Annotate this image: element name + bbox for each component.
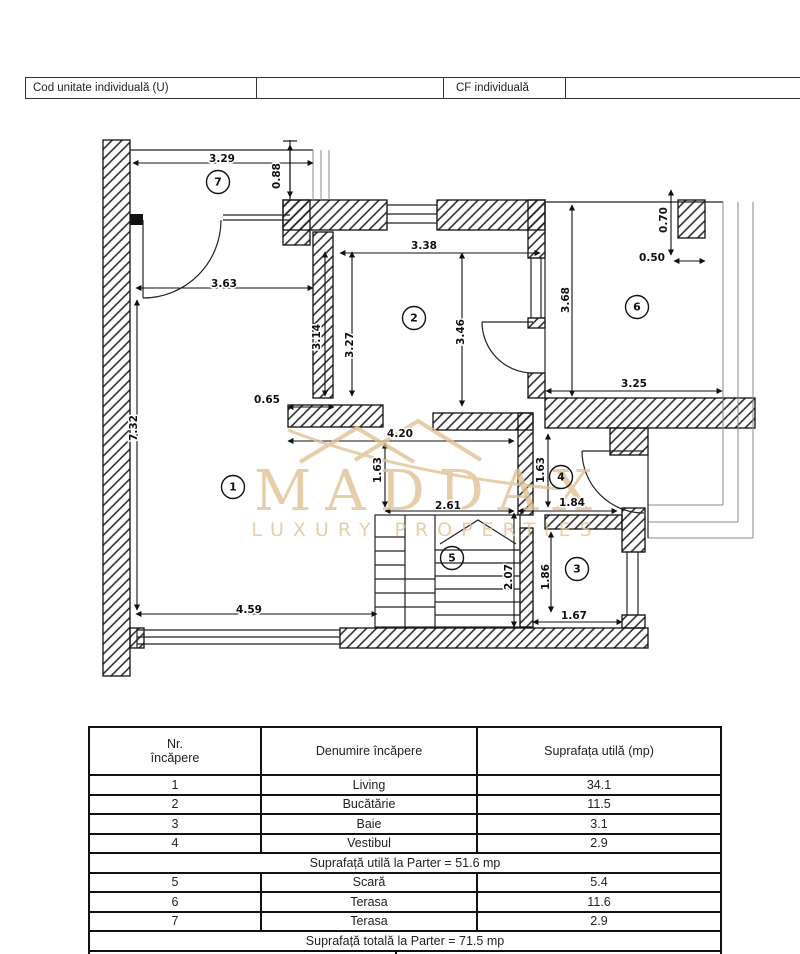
total-row: Suprafață totală la Parter = 71.5 mp bbox=[90, 930, 720, 950]
dim-label: 4.59 bbox=[236, 604, 262, 616]
dim-label: 4.20 bbox=[387, 428, 413, 440]
room-name-cell: Bucătărie bbox=[262, 796, 478, 814]
dim-label: 1.86 bbox=[540, 564, 552, 590]
room-area-cell: 11.5 bbox=[478, 796, 720, 814]
room-number-cell: 7 bbox=[90, 913, 262, 931]
room-name-cell: Scară bbox=[262, 874, 478, 892]
room-number-cell: 6 bbox=[90, 893, 262, 911]
room-number: 4 bbox=[557, 471, 565, 484]
room-area-cell: 11.6 bbox=[478, 893, 720, 911]
header-suprafata: Suprafața utilă (mp) bbox=[478, 728, 720, 774]
dim-label: 1.84 bbox=[559, 497, 585, 509]
table-row: 4Vestibul2.9 bbox=[90, 833, 720, 853]
door-jamb bbox=[130, 214, 143, 225]
dim-label: 3.27 bbox=[344, 332, 356, 358]
table-row: 2Bucătărie11.5 bbox=[90, 794, 720, 814]
table-row: 7Terasa2.9 bbox=[90, 911, 720, 931]
next-table-partial-row bbox=[90, 950, 720, 954]
dim-label: 1.67 bbox=[561, 610, 587, 622]
dim-label: 0.88 bbox=[271, 163, 283, 189]
room-name-cell: Terasa bbox=[262, 913, 478, 931]
room-number: 5 bbox=[448, 552, 456, 565]
room-number-cell: 3 bbox=[90, 815, 262, 833]
room-name-cell: Terasa bbox=[262, 893, 478, 911]
table-row: 1Living34.1 bbox=[90, 774, 720, 794]
floor-plan-drawing: MADDAX LUXURY PROPERTIES 3.290.883.637.3… bbox=[0, 0, 800, 720]
room-area-cell: 34.1 bbox=[478, 776, 720, 794]
room-number: 6 bbox=[633, 301, 641, 314]
room-area-cell: 2.9 bbox=[478, 835, 720, 853]
rows-parter: 1Living34.12Bucătărie11.53Baie3.14Vestib… bbox=[90, 774, 720, 852]
header-denumire: Denumire încăpere bbox=[262, 728, 478, 774]
room-number: 2 bbox=[410, 312, 418, 325]
watermark: MADDAX LUXURY PROPERTIES bbox=[251, 421, 606, 541]
room-number: 1 bbox=[229, 481, 237, 494]
header-nr-line2: încăpere bbox=[151, 751, 200, 765]
room-area-cell: 3.1 bbox=[478, 815, 720, 833]
room-area-cell: 5.4 bbox=[478, 874, 720, 892]
room-number: 7 bbox=[214, 176, 222, 189]
dim-label: 0.70 bbox=[658, 207, 670, 233]
watermark-tagline: LUXURY PROPERTIES bbox=[251, 519, 600, 541]
dim-label: 3.46 bbox=[455, 319, 467, 345]
subtotal-row: Suprafață utilă la Parter = 51.6 mp bbox=[90, 852, 720, 872]
room-number-cell: 2 bbox=[90, 796, 262, 814]
room-name-cell: Vestibul bbox=[262, 835, 478, 853]
dim-label: 3.68 bbox=[560, 287, 572, 313]
room-number-cell: 5 bbox=[90, 874, 262, 892]
dim-label: 1.63 bbox=[535, 457, 547, 483]
dim-label: 2.61 bbox=[435, 500, 461, 512]
header-nr-line1: Nr. bbox=[167, 737, 183, 751]
dim-label: 3.38 bbox=[411, 240, 437, 252]
room-area-table: Nr. încăpere Denumire încăpere Suprafața… bbox=[88, 726, 722, 954]
room-area-cell: 2.9 bbox=[478, 913, 720, 931]
room-name-cell: Living bbox=[262, 776, 478, 794]
room-number-cell: 1 bbox=[90, 776, 262, 794]
dim-label: 3.63 bbox=[211, 278, 237, 290]
dim-label: 1.63 bbox=[372, 457, 384, 483]
rows-anexe: 5Scară5.46Terasa11.67Terasa2.9 bbox=[90, 872, 720, 931]
kitchen-door-arc bbox=[482, 322, 533, 373]
dim-label: 7.32 bbox=[128, 415, 140, 441]
dim-label: 3.25 bbox=[621, 378, 647, 390]
table-header-row: Nr. încăpere Denumire încăpere Suprafața… bbox=[90, 728, 720, 774]
room-name-cell: Baie bbox=[262, 815, 478, 833]
room-number: 3 bbox=[573, 563, 581, 576]
dim-label: 0.65 bbox=[254, 394, 280, 406]
dim-label: 3.14 bbox=[311, 324, 323, 350]
table-row: 6Terasa11.6 bbox=[90, 891, 720, 911]
terrace-door-arc bbox=[143, 220, 221, 298]
dim-label: 3.29 bbox=[209, 153, 235, 165]
dim-label: 0.50 bbox=[639, 252, 665, 264]
table-row: 3Baie3.1 bbox=[90, 813, 720, 833]
room-number-cell: 4 bbox=[90, 835, 262, 853]
dim-label: 2.07 bbox=[503, 564, 515, 590]
table-row: 5Scară5.4 bbox=[90, 872, 720, 892]
header-nr-incapere: Nr. încăpere bbox=[90, 728, 262, 774]
